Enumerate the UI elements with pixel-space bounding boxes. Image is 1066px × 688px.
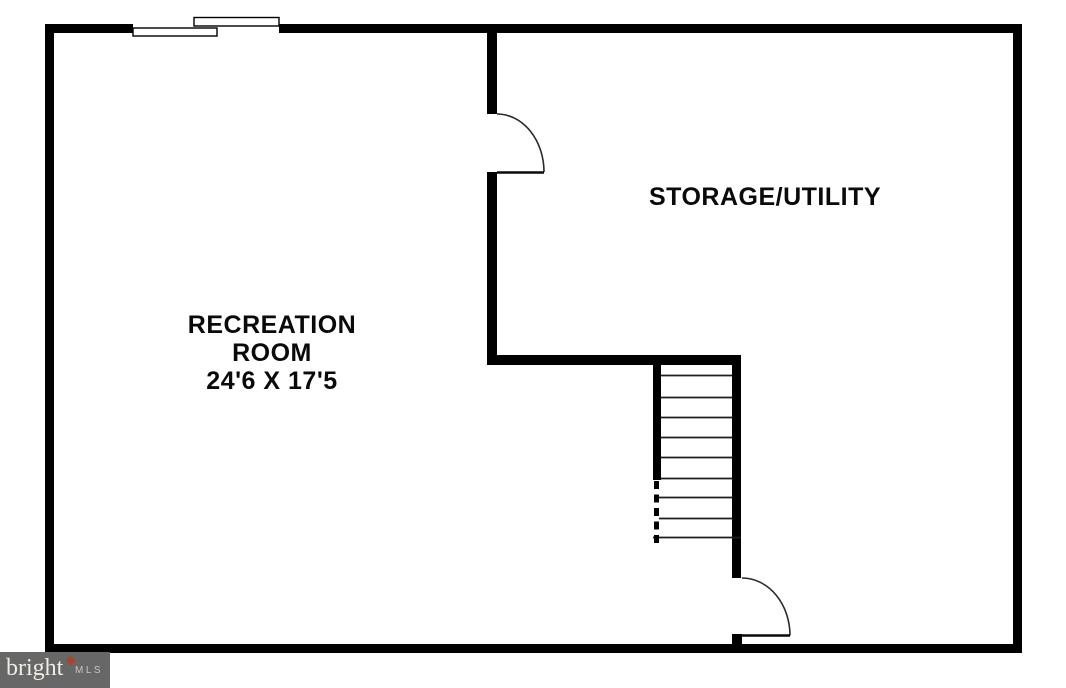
recreation-room-label: RECREATION ROOM 24'6 X 17'5 <box>188 311 356 395</box>
window-sash-lower <box>133 28 217 36</box>
door-storage-swing-arc <box>497 114 544 172</box>
brightmls-flame-icon <box>66 656 76 666</box>
window-sash-upper <box>194 18 279 27</box>
recreation-room-label-line1: RECREATION <box>188 311 356 339</box>
floorplan-canvas: STORAGE/UTILITY RECREATION ROOM 24'6 X 1… <box>0 0 1066 688</box>
wall-top-main-segment <box>279 24 1022 33</box>
recreation-room-label-line2: ROOM <box>232 339 312 367</box>
wall-left <box>45 24 54 653</box>
staircase <box>653 376 741 544</box>
storage-utility-label: STORAGE/UTILITY <box>649 183 881 211</box>
recreation-room-dimensions: 24'6 X 17'5 <box>206 367 337 395</box>
brightmls-watermark: bright MLS <box>0 652 110 688</box>
door-bottom-swing-arc <box>742 578 790 636</box>
wall-bottom <box>45 644 1022 653</box>
wall-divider-lower <box>487 172 497 365</box>
wall-bottom-door-stub <box>732 634 742 649</box>
wall-top-left-segment <box>45 24 133 33</box>
wall-stair-left <box>653 365 661 480</box>
window-top <box>133 18 279 37</box>
brightmls-mls-text: MLS <box>75 665 103 676</box>
wall-right <box>1013 24 1022 653</box>
interior-walls <box>487 24 742 649</box>
wall-divider-upper <box>487 24 497 114</box>
wall-mid-horizontal <box>487 355 740 365</box>
door-bottom <box>742 578 790 636</box>
floorplan-page: STORAGE/UTILITY RECREATION ROOM 24'6 X 1… <box>0 0 1066 688</box>
door-storage <box>497 114 544 173</box>
wall-stair-right <box>732 355 741 578</box>
brightmls-brand-text: bright <box>6 653 63 683</box>
